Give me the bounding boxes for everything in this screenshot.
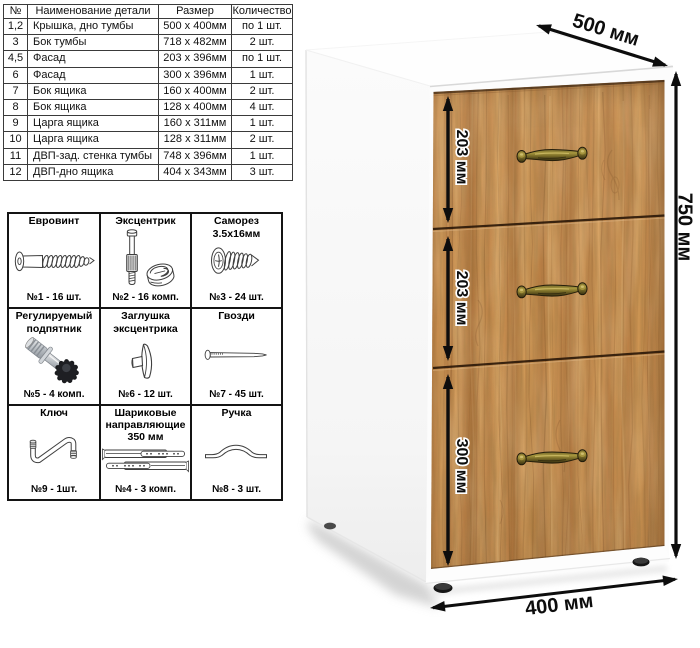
- svg-text:203 мм: 203 мм: [453, 130, 470, 185]
- svg-text:750 мм: 750 мм: [674, 193, 696, 262]
- svg-text:203 мм: 203 мм: [453, 271, 470, 326]
- svg-text:300 мм: 300 мм: [453, 439, 470, 494]
